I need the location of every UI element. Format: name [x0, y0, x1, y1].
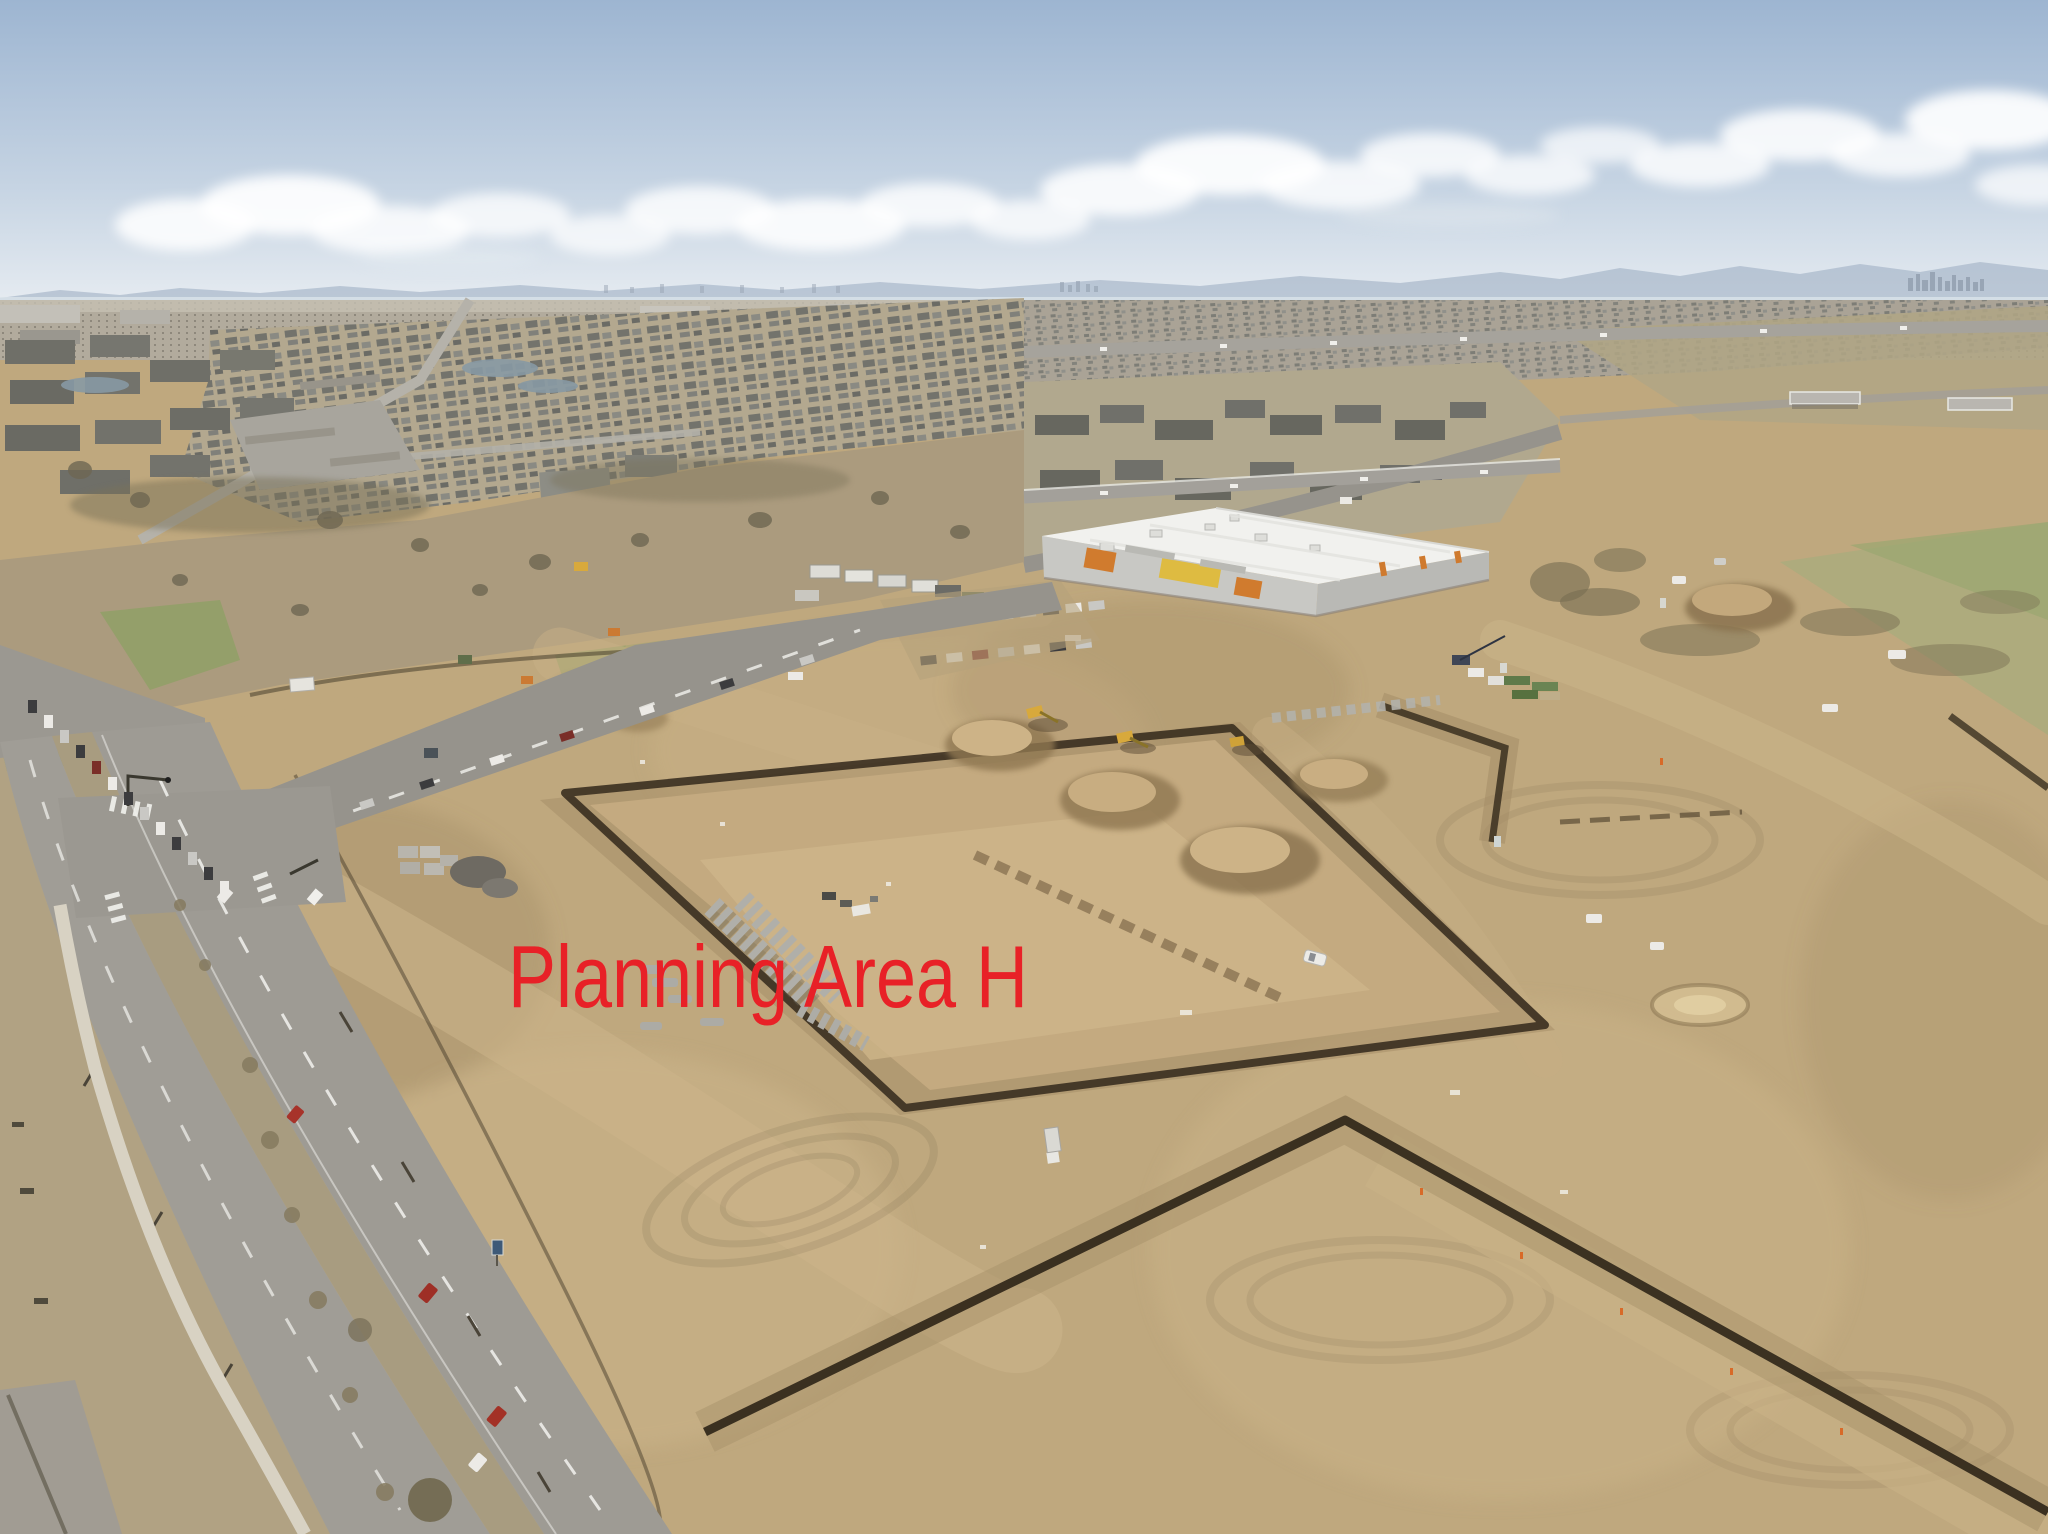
orange-machine — [521, 676, 533, 684]
rv-trailer — [290, 677, 315, 692]
circular-pit — [1652, 985, 1748, 1025]
orange-machine — [608, 628, 620, 636]
annotation-planning-area: Planning Area H — [508, 927, 1028, 1026]
loader — [574, 562, 588, 571]
small-sign — [424, 748, 438, 758]
intersection — [58, 786, 346, 918]
green-machine — [458, 655, 472, 664]
aerial-photo: Planning Area H — [0, 0, 2048, 1534]
